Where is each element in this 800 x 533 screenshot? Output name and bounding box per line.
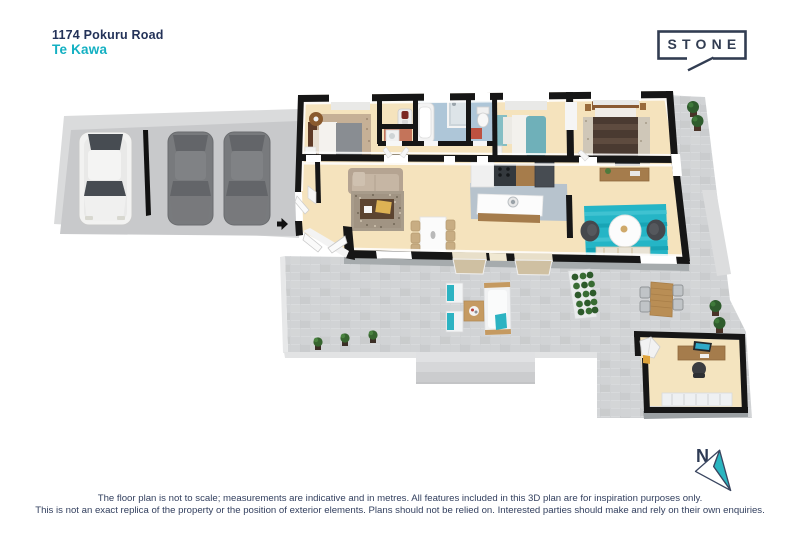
svg-text:STONE: STONE (668, 36, 742, 52)
